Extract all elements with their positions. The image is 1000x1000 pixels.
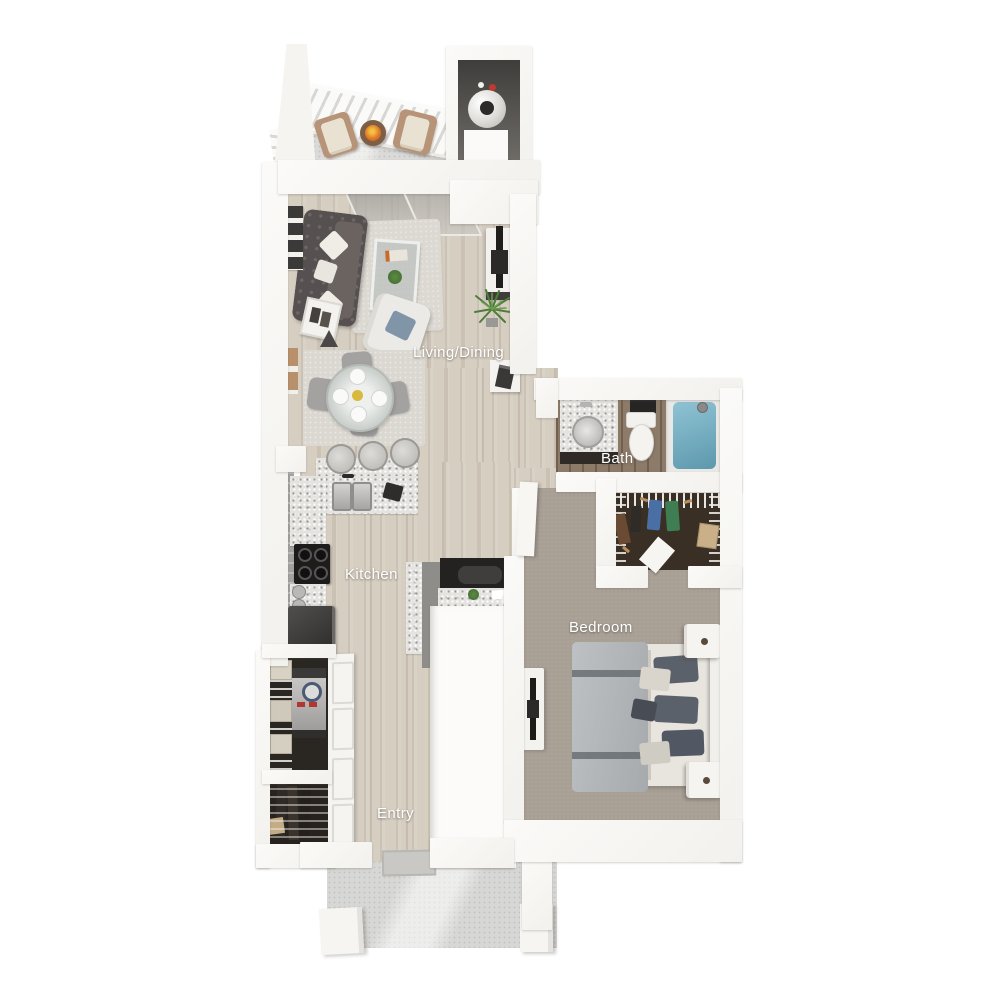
wall-closet-bottom-right — [688, 566, 742, 588]
wall-bedroom-left — [504, 556, 524, 822]
dinner-plate — [349, 368, 366, 385]
bar-stool — [358, 441, 388, 471]
water-heater-vent — [480, 101, 494, 115]
dinner-plate — [332, 388, 349, 405]
kitchen-counter-left — [290, 476, 326, 546]
laundry-basket — [270, 700, 292, 722]
table-books — [385, 249, 408, 262]
canister — [292, 585, 306, 599]
nightstand-knob — [703, 777, 710, 784]
hall-floor-2 — [445, 462, 514, 558]
hanging-clothes-blue — [647, 499, 663, 530]
heater-valve-red — [489, 84, 496, 91]
wall-closet-left — [596, 478, 616, 578]
closet-storage-box — [696, 523, 719, 550]
wall-bath-bottom — [556, 472, 742, 492]
floor-plan: Living/Dining Bath Kitchen Bedroom Entry — [0, 0, 1000, 1000]
wall-kitchen-corner — [276, 446, 306, 472]
bar-stool — [326, 444, 356, 474]
tv-mount — [491, 250, 508, 274]
bed-pillow-light — [639, 741, 671, 766]
porch-pillar-left — [319, 907, 364, 955]
washer-dial — [302, 682, 322, 702]
laundry-basket — [270, 734, 292, 754]
dinner-plate — [350, 406, 367, 423]
dinner-plate — [371, 390, 388, 407]
wall-bedroom-bottom — [504, 820, 742, 862]
plant-leaves — [472, 288, 512, 330]
wall-bath-top — [534, 378, 742, 400]
desk-plant — [468, 589, 479, 600]
label-kitchen: Kitchen — [345, 566, 398, 583]
bathtub — [666, 396, 722, 476]
bed-pillow-light — [639, 666, 671, 691]
porch-wall-stub — [522, 856, 552, 930]
table-centerpiece — [352, 390, 363, 401]
closet-bifold-doors — [328, 654, 354, 853]
door-panel — [332, 708, 354, 751]
wall-left — [262, 162, 288, 666]
fire-flame — [365, 125, 381, 141]
burner — [314, 566, 328, 580]
kitchen-sink-basin — [332, 482, 352, 511]
vanity-faucet — [580, 402, 592, 407]
armchair-pillow — [384, 310, 417, 342]
table-frame — [309, 307, 321, 324]
wall-right-living — [510, 194, 536, 374]
door-panel — [332, 804, 354, 847]
water-heater — [468, 90, 506, 128]
wall-laundry-left — [256, 650, 270, 868]
bed-pillow-accent — [630, 698, 657, 722]
burner — [314, 548, 328, 562]
hanging-clothes-green — [665, 501, 680, 532]
wall-bath-door-stub — [536, 378, 558, 418]
wall-right-outer — [720, 388, 742, 862]
bathtub-basin — [673, 402, 716, 469]
patio-chair-cushion — [320, 117, 353, 156]
label-living-dining: Living/Dining — [413, 344, 504, 361]
washer-button-red — [309, 702, 317, 707]
heater-valve-white — [478, 82, 484, 88]
desk-chair — [458, 566, 502, 584]
stove — [294, 544, 330, 584]
burner — [298, 548, 312, 562]
duvet-band — [572, 670, 648, 677]
bed-pillow-dark — [653, 695, 698, 724]
fire-table — [360, 120, 386, 146]
bar-stool — [390, 438, 420, 468]
side-counter — [406, 562, 422, 654]
table-plant — [387, 270, 402, 285]
wall-closet-bottom-left — [596, 566, 648, 588]
duvet-band — [572, 752, 648, 759]
hanging-clothes-dark — [630, 506, 641, 532]
wall-laundry-top — [262, 644, 336, 658]
floor-plant — [472, 288, 512, 330]
label-bath: Bath — [601, 450, 633, 467]
burner — [298, 566, 312, 580]
heater-storage-box — [464, 130, 508, 164]
shower-head — [697, 402, 708, 413]
washer-dryer — [292, 668, 326, 738]
nightstand — [686, 762, 723, 798]
side-table — [299, 297, 342, 342]
wall-laundry-mid — [262, 770, 332, 784]
coat-closet-shelving — [266, 782, 328, 846]
bedroom-tv-mount — [527, 700, 539, 718]
kitchen-sink-basin — [352, 482, 372, 511]
wall-entry-bottom-left — [300, 842, 372, 868]
patio-chair-cushion — [399, 115, 430, 153]
label-entry: Entry — [377, 805, 414, 822]
vanity-sink — [572, 416, 604, 448]
kitchen-faucet — [342, 474, 354, 478]
label-bedroom: Bedroom — [569, 619, 633, 636]
wall-entry-bottom-right — [430, 838, 514, 868]
nightstand-knob — [701, 638, 708, 645]
doormat — [382, 850, 436, 877]
door-panel — [332, 758, 354, 801]
door-panel — [332, 662, 354, 705]
nightstand — [684, 624, 721, 658]
washer-button-red — [297, 702, 305, 707]
wall-art-gallery — [286, 206, 303, 270]
balcony-left-wall — [274, 44, 316, 170]
table-frame — [320, 311, 332, 328]
